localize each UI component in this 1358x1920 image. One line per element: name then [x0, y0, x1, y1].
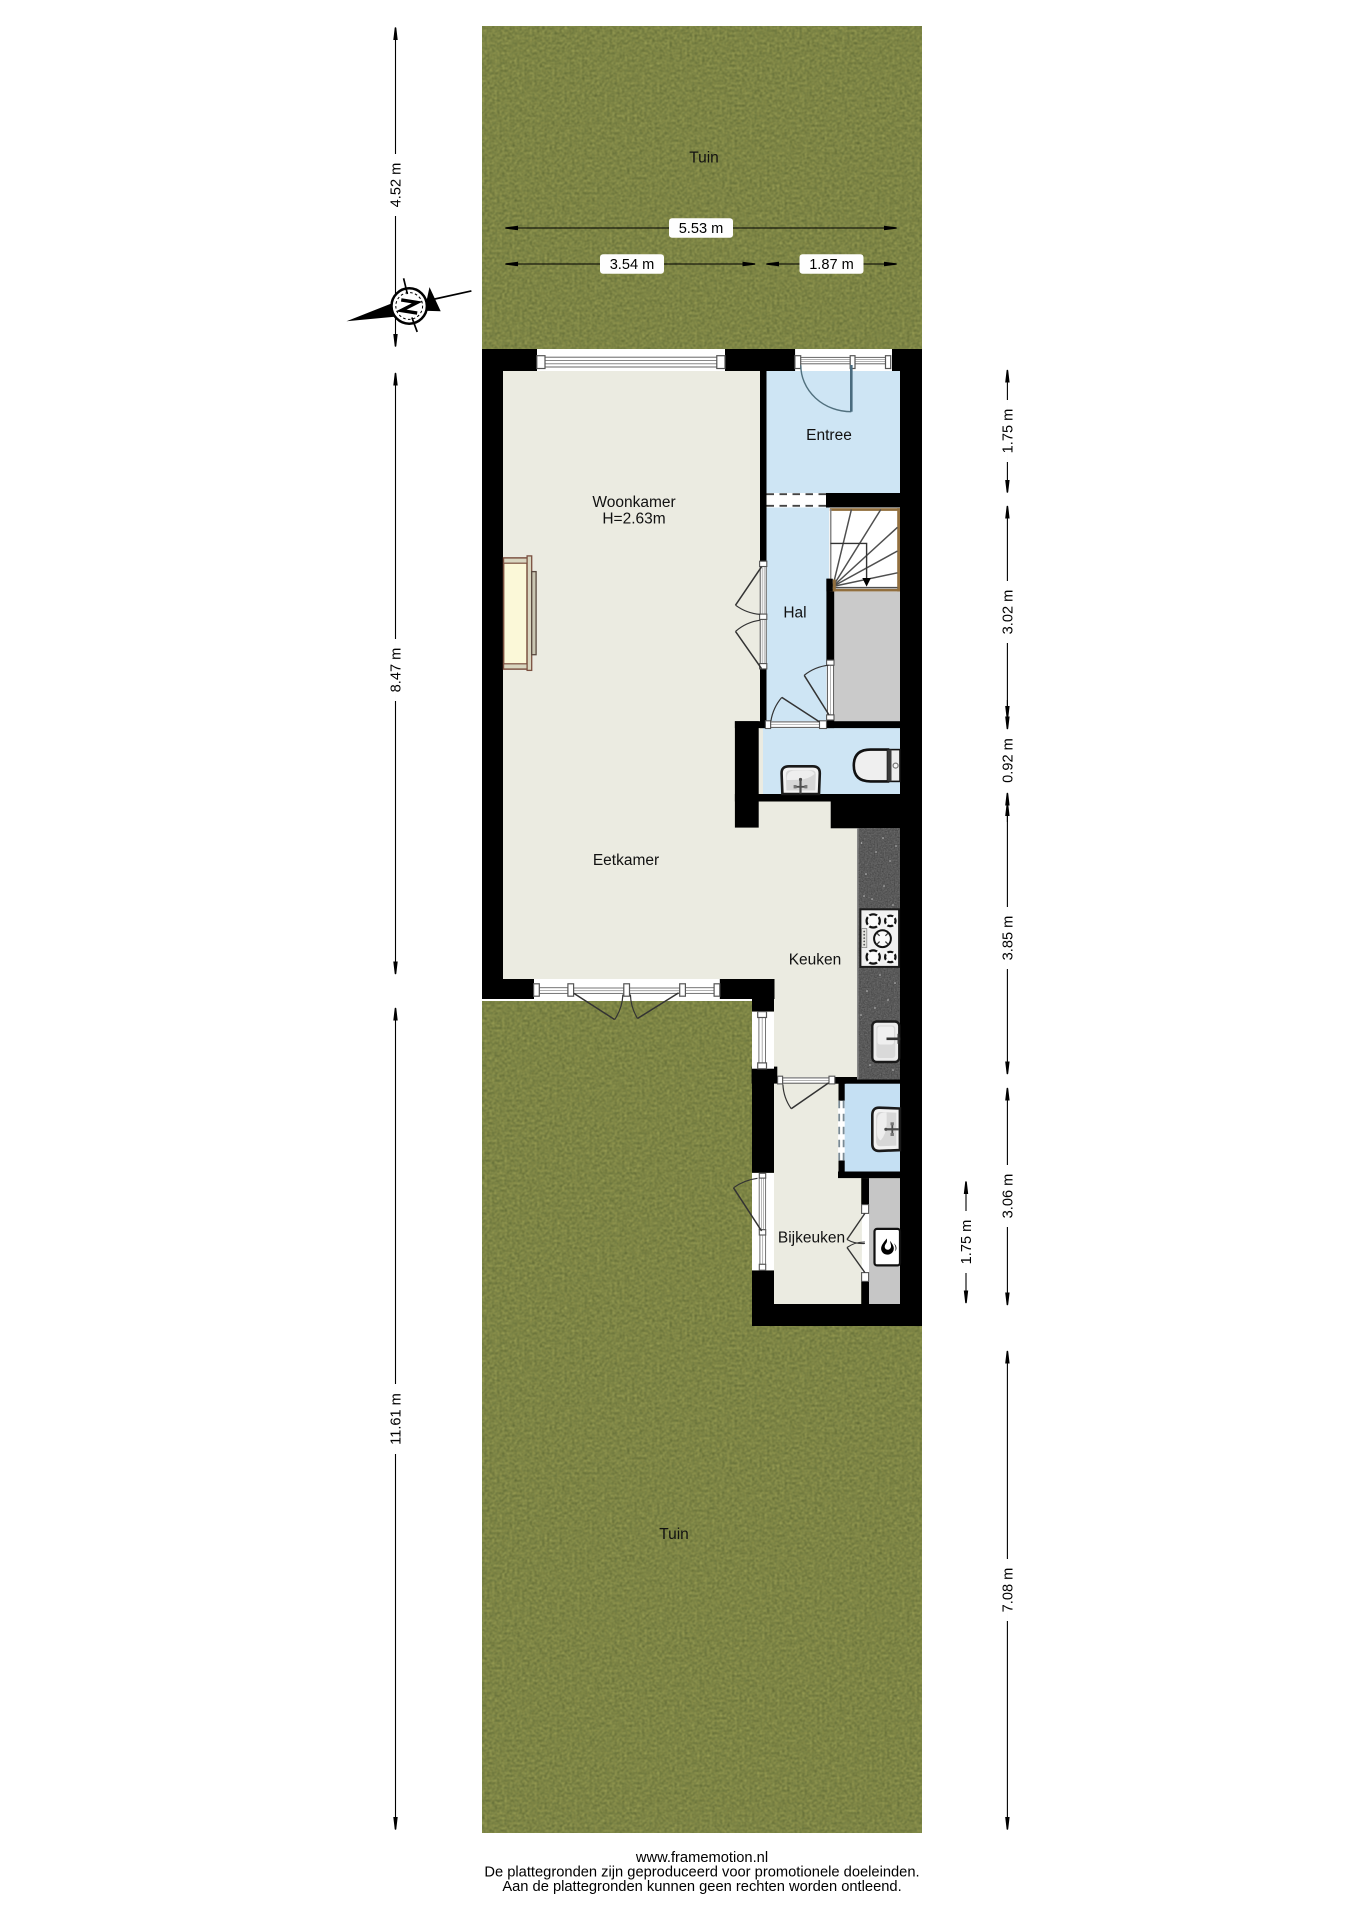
- svg-text:Hal: Hal: [783, 605, 806, 622]
- svg-text:Keuken: Keuken: [789, 952, 842, 969]
- svg-text:3.85 m: 3.85 m: [1001, 916, 1017, 961]
- svg-text:8.47 m: 8.47 m: [389, 648, 405, 693]
- svg-text:Eetkamer: Eetkamer: [593, 852, 659, 869]
- svg-text:5.53 m: 5.53 m: [679, 221, 724, 237]
- svg-text:Tuin: Tuin: [659, 1526, 689, 1543]
- svg-text:3.06 m: 3.06 m: [1001, 1174, 1017, 1219]
- svg-text:Bijkeuken: Bijkeuken: [778, 1230, 845, 1247]
- svg-text:0.92 m: 0.92 m: [1001, 738, 1017, 783]
- svg-text:11.61 m: 11.61 m: [389, 1393, 405, 1445]
- svg-text:1.75 m: 1.75 m: [1001, 409, 1017, 454]
- svg-text:3.54 m: 3.54 m: [610, 257, 655, 273]
- svg-text:Aan de plattegronden kunnen ge: Aan de plattegronden kunnen geen rechten…: [502, 1879, 901, 1895]
- svg-text:Woonkamer: Woonkamer: [592, 494, 675, 511]
- svg-text:H=2.63m: H=2.63m: [602, 511, 665, 528]
- svg-text:Tuin: Tuin: [689, 150, 719, 167]
- svg-text:4.52 m: 4.52 m: [389, 163, 405, 208]
- svg-text:1.75 m: 1.75 m: [959, 1220, 975, 1265]
- svg-text:1.87 m: 1.87 m: [809, 257, 854, 273]
- svg-text:Entree: Entree: [806, 427, 852, 444]
- svg-text:3.02 m: 3.02 m: [1001, 590, 1017, 635]
- svg-text:7.08 m: 7.08 m: [1001, 1568, 1017, 1613]
